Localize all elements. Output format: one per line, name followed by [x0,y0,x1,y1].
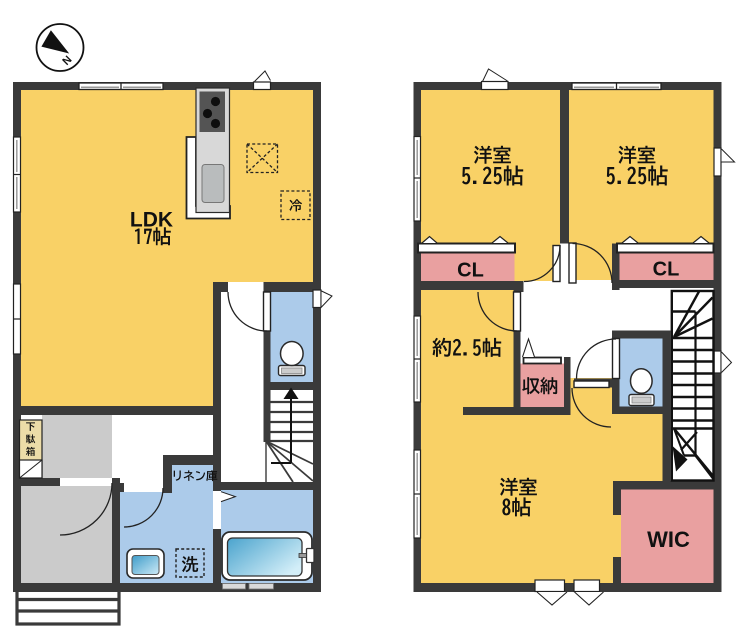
svg-text:WIC: WIC [647,527,690,552]
svg-text:LDK: LDK [130,209,173,232]
svg-text:CL: CL [653,259,680,281]
svg-text:CL: CL [457,260,484,282]
